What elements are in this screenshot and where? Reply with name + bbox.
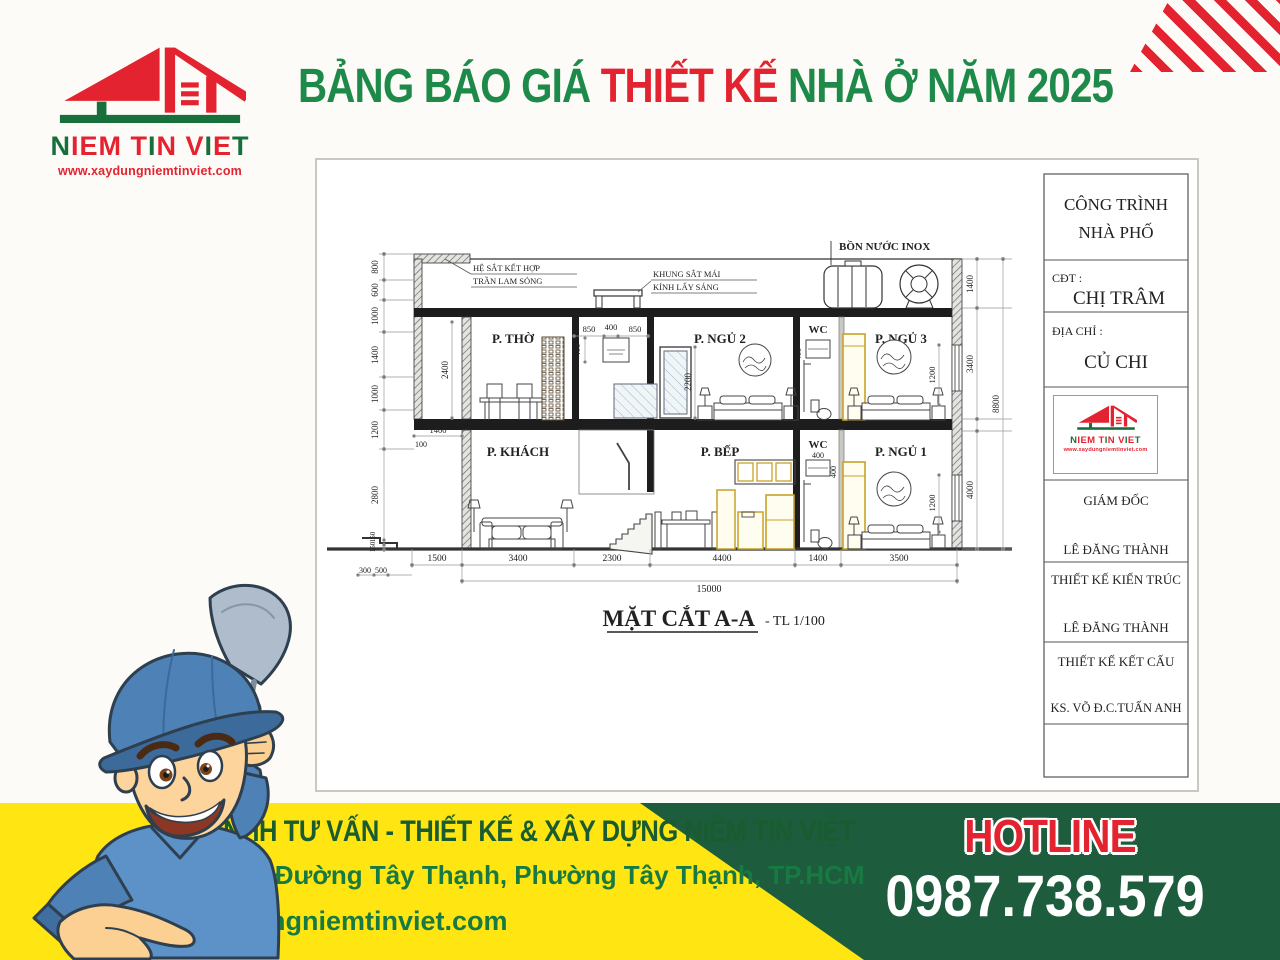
section-title-text: MẶT CẮT A-A — [603, 605, 756, 631]
logo-house-icon — [54, 22, 246, 128]
ceiling-label-2: TRẦN LAM SÓNG — [473, 276, 542, 286]
dim-bottom-3400: 3400 — [509, 554, 528, 564]
hotline-label: HOTLINE — [949, 809, 1151, 863]
dim-left-150b: 150 — [369, 541, 377, 552]
tb-cdt-label: CĐT : — [1052, 271, 1082, 285]
room-label-bep: P. BẾP — [701, 444, 740, 459]
tb-arch-name: LÊ ĐĂNG THÀNH — [1063, 620, 1168, 635]
logo-house-icon-small — [1075, 398, 1137, 431]
title-part-3: NHÀ Ở NĂM 2025 — [778, 60, 1113, 113]
dim-850a: 850 — [583, 324, 596, 334]
section-title: MẶT CẮT A-A - TL 1/100 — [603, 605, 825, 632]
dim-left-150a: 150 — [369, 531, 377, 542]
dim-bottom-4400: 4400 — [713, 554, 732, 564]
title-block-logo: NIEM TIN VIET www.xaydungniemtinviet.com — [1053, 395, 1158, 474]
tb-addr-label: ĐỊA CHỈ : — [1052, 324, 1103, 338]
tb-arch-label: THIẾT KẾ KIẾN TRÚC — [1051, 572, 1181, 587]
dim-bottom-3500: 3500 — [890, 554, 909, 564]
poster-page: NIEM TIN VIET www.xaydungniemtinviet.com… — [0, 0, 1280, 960]
builder-mascot — [12, 570, 346, 960]
dim-step-500: 500 — [375, 566, 387, 575]
tb-logo-name: NIEM TIN VIET — [1054, 436, 1157, 446]
tb-cdt-name: CHỊ TRÂM — [1073, 287, 1165, 309]
dim-wc-400-lower: 400 — [812, 451, 824, 460]
dim-left-1000: 1000 — [370, 307, 380, 326]
dim-2200: 2200 — [683, 373, 693, 392]
tb-logo-website: www.xaydungniemtinviet.com — [1054, 447, 1157, 453]
dim-right-1400: 1400 — [965, 275, 975, 294]
dim-wc-400-upper: 400 — [794, 348, 803, 360]
tb-director-label: GIÁM ĐỐC — [1083, 493, 1148, 508]
dim-left-800: 800 — [370, 260, 380, 274]
dim-right-8800: 8800 — [991, 395, 1001, 414]
dim-850b: 850 — [629, 324, 642, 334]
dim-400a: 400 — [605, 322, 618, 332]
dim-bottom-2300: 2300 — [603, 554, 622, 564]
roof-vent — [900, 265, 938, 308]
dim-right-3400: 3400 — [965, 355, 975, 374]
dim-1200-lower: 1200 — [927, 495, 937, 512]
dim-total-15000: 15000 — [697, 584, 722, 595]
dim-step-300: 300 — [359, 566, 371, 575]
hotline-number[interactable]: 0987.738.579 — [870, 863, 1221, 930]
tb-struct-label: THIẾT KẾ KẾT CẤU — [1058, 654, 1175, 669]
tb-project-2: NHÀ PHỐ — [1078, 223, 1153, 242]
dim-400-vert: 400 — [572, 344, 582, 357]
title-block: CÔNG TRÌNH NHÀ PHỐ CĐT : CHỊ TRÂM ĐỊA CH… — [1044, 174, 1188, 777]
room-label-tho: P. THỜ — [492, 331, 535, 346]
dim-right-4000: 4000 — [965, 481, 975, 500]
tank-label: BỒN NƯỚC INOX — [839, 240, 930, 253]
dim-left-1000b: 1000 — [370, 385, 380, 404]
furniture-upper — [480, 334, 945, 420]
dim-left-2800: 2800 — [370, 486, 380, 505]
corner-stripes-decoration — [1130, 0, 1280, 72]
dim-balcony-1400: 1400 — [430, 425, 447, 435]
dim-2400: 2400 — [440, 361, 450, 380]
room-label-khach: P. KHÁCH — [487, 444, 549, 459]
room-label-ngu2: P. NGỦ 2 — [694, 331, 746, 346]
dim-left-1200: 1200 — [370, 421, 380, 440]
page-title: BẢNG BÁO GIÁ THIẾT KẾ NHÀ Ở NĂM 2025 — [298, 56, 1113, 118]
title-part-1: BẢNG BÁO GIÁ — [298, 60, 601, 113]
tb-project-1: CÔNG TRÌNH — [1064, 195, 1168, 214]
dim-1200-upper: 1200 — [927, 367, 937, 384]
logo-website: www.xaydungniemtinviet.com — [36, 164, 264, 178]
room-label-ngu1: P. NGỦ 1 — [875, 444, 927, 459]
dim-left-600: 600 — [370, 283, 380, 297]
tb-director-name: LÊ ĐĂNG THÀNH — [1063, 542, 1168, 557]
skylight-label-1: KHUNG SẮT MÁI — [653, 269, 721, 279]
dim-bottom-1500: 1500 — [428, 554, 447, 564]
title-part-2: THIẾT KẾ — [601, 60, 778, 113]
dim-100: 100 — [415, 440, 427, 449]
skylight-frame — [594, 290, 642, 308]
room-label-wc-upper: WC — [809, 324, 828, 336]
skylight-label-2: KÍNH LẤY SÁNG — [653, 282, 719, 292]
tb-addr-name: CỦ CHI — [1084, 351, 1148, 373]
logo-name: NIEM TIN VIET — [36, 133, 264, 160]
company-logo: NIEM TIN VIET www.xaydungniemtinviet.com — [36, 22, 264, 178]
ceiling-label-1: HỆ SẮT KẾT HỢP — [473, 263, 540, 273]
room-label-wc-lower: WC — [809, 439, 828, 451]
drawing-sheet: BỒN NƯỚC INOX HỆ SẮT KẾT HỢP TRẦN LAM SÓ… — [315, 158, 1199, 792]
section-scale-text: - TL 1/100 — [765, 614, 825, 629]
tb-struct-name: KS. VÕ Đ.C.TUẤN ANH — [1050, 700, 1181, 715]
dim-left-1400: 1400 — [370, 346, 380, 365]
dim-wc-400-lower-vert: 400 — [829, 466, 838, 478]
dim-bottom-1400: 1400 — [809, 554, 828, 564]
